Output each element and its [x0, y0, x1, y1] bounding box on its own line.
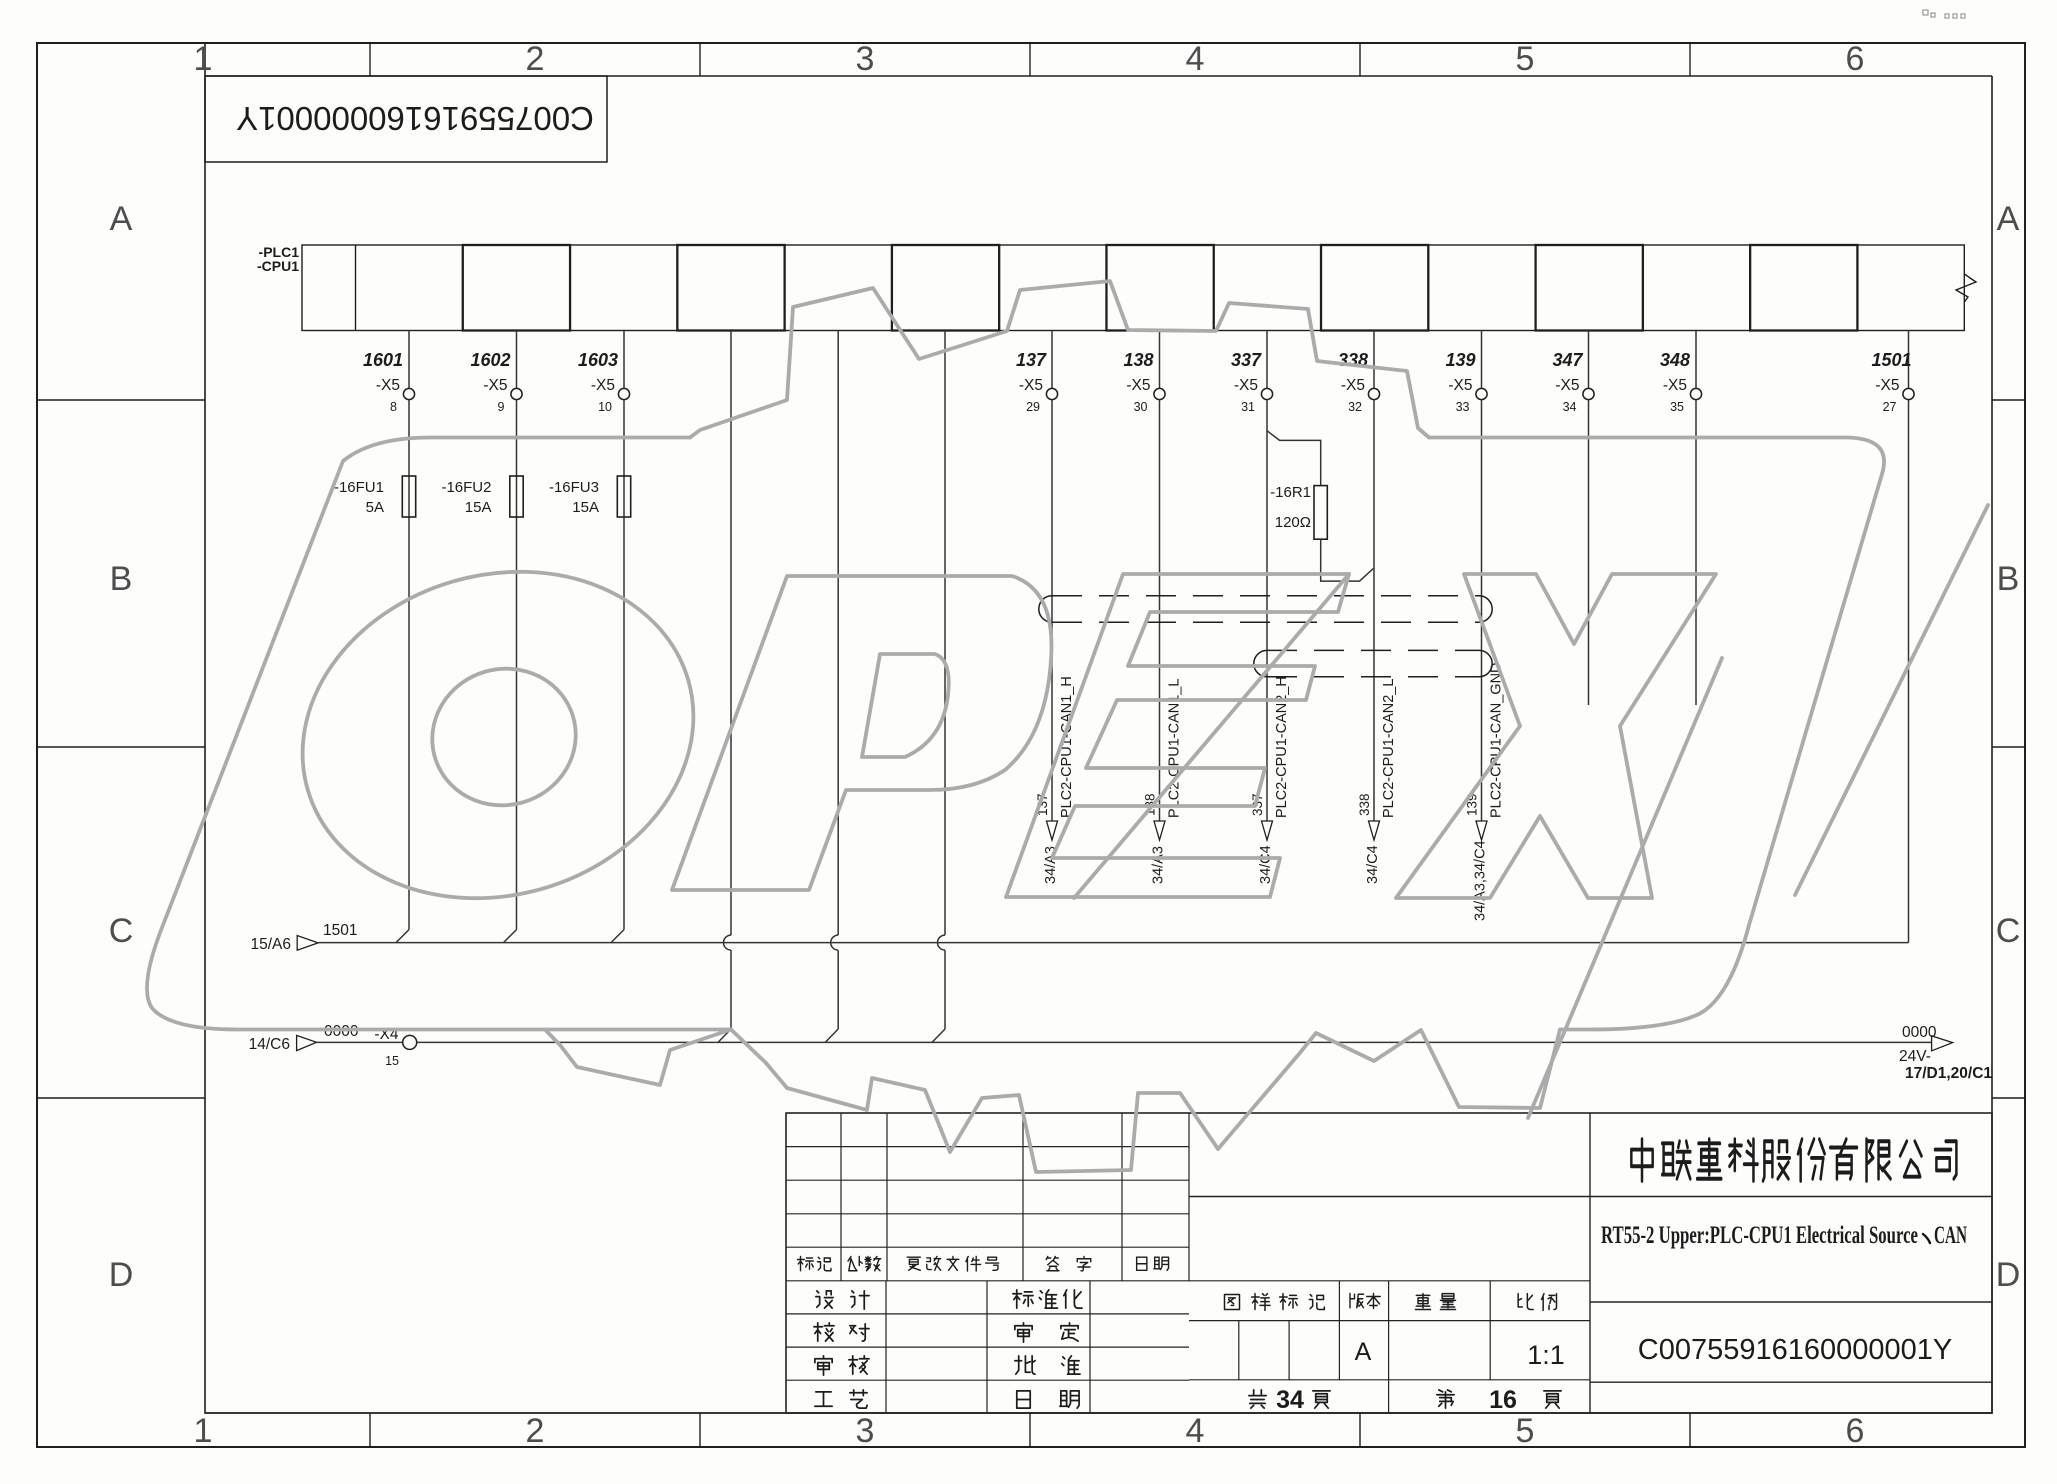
- svg-text:-16FU1: -16FU1: [334, 479, 384, 496]
- svg-text:27: 27: [1883, 400, 1897, 414]
- svg-text:2: 2: [526, 40, 545, 78]
- svg-text:RT55-2 Upper:PLC-CPU1 Electric: RT55-2 Upper:PLC-CPU1 Electrical Source: [1601, 1222, 1918, 1249]
- svg-text:15/A6: 15/A6: [250, 936, 291, 953]
- svg-text:3: 3: [856, 40, 875, 78]
- svg-text:1:1: 1:1: [1527, 1340, 1565, 1370]
- svg-text:4: 4: [1186, 1412, 1205, 1450]
- svg-text:15: 15: [385, 1054, 399, 1068]
- svg-text:PLC2-CPU1-CAN2_L: PLC2-CPU1-CAN2_L: [1381, 679, 1397, 818]
- svg-text:-X5: -X5: [1448, 377, 1472, 394]
- svg-text:1603: 1603: [578, 350, 618, 370]
- svg-text:30: 30: [1134, 400, 1148, 414]
- svg-text:-X5: -X5: [1875, 377, 1899, 394]
- svg-text:137: 137: [1016, 350, 1047, 370]
- svg-text:34/A3,34/C4: 34/A3,34/C4: [1473, 840, 1489, 921]
- svg-text:31: 31: [1241, 400, 1255, 414]
- svg-text:B: B: [110, 560, 133, 598]
- svg-text:5: 5: [1516, 1412, 1535, 1450]
- svg-text:17/D1,20/C1: 17/D1,20/C1: [1905, 1065, 1992, 1082]
- svg-text:D: D: [1996, 1256, 2021, 1294]
- svg-text:338: 338: [1357, 793, 1372, 816]
- svg-text:29: 29: [1026, 400, 1040, 414]
- svg-text:1: 1: [194, 1412, 213, 1450]
- svg-text:6: 6: [1846, 40, 1865, 78]
- svg-text:0000: 0000: [1902, 1024, 1937, 1041]
- svg-text:2: 2: [526, 1412, 545, 1450]
- svg-text:33: 33: [1456, 400, 1470, 414]
- svg-text:-CPU1: -CPU1: [257, 258, 299, 274]
- svg-text:34: 34: [1563, 400, 1577, 414]
- svg-text:0000: 0000: [324, 1023, 359, 1040]
- svg-text:-X5: -X5: [483, 377, 507, 394]
- svg-text:120Ω: 120Ω: [1275, 514, 1311, 531]
- svg-text:8: 8: [390, 400, 397, 414]
- svg-text:6: 6: [1846, 1412, 1865, 1450]
- svg-text:-X5: -X5: [1234, 377, 1258, 394]
- svg-text:-X5: -X5: [376, 377, 400, 394]
- svg-text:337: 337: [1231, 350, 1262, 370]
- svg-text:14/C6: 14/C6: [249, 1036, 290, 1053]
- svg-text:16: 16: [1489, 1386, 1517, 1414]
- svg-text:5A: 5A: [366, 499, 384, 516]
- svg-text:CAN: CAN: [1934, 1222, 1967, 1249]
- svg-text:32: 32: [1348, 400, 1362, 414]
- svg-text:1: 1: [194, 40, 213, 78]
- svg-text:4: 4: [1186, 40, 1205, 78]
- svg-text:C: C: [109, 912, 134, 950]
- svg-text:-X5: -X5: [1341, 377, 1365, 394]
- svg-text:15A: 15A: [572, 499, 599, 516]
- svg-text:C: C: [1996, 912, 2021, 950]
- svg-text:-X5: -X5: [1019, 377, 1043, 394]
- svg-text:A: A: [1355, 1338, 1372, 1366]
- svg-text:348: 348: [1660, 350, 1690, 370]
- svg-text:PLC2-CPU1-CAN_GND: PLC2-CPU1-CAN_GND: [1489, 662, 1505, 818]
- svg-text:3: 3: [856, 1412, 875, 1450]
- svg-text:-X5: -X5: [1126, 377, 1150, 394]
- svg-text:1501: 1501: [1871, 350, 1911, 370]
- svg-text:-X5: -X5: [1555, 377, 1579, 394]
- svg-text:C00755916160000001Y: C00755916160000001Y: [1638, 1334, 1952, 1366]
- svg-text:34: 34: [1276, 1386, 1304, 1414]
- svg-text:B: B: [1997, 560, 2020, 598]
- svg-text:-16FU3: -16FU3: [549, 479, 599, 496]
- svg-text:-16R1: -16R1: [1270, 484, 1311, 501]
- svg-text:-16FU2: -16FU2: [441, 479, 491, 496]
- svg-text:-X5: -X5: [591, 377, 615, 394]
- svg-text:9: 9: [498, 400, 505, 414]
- svg-text:A: A: [1997, 200, 2020, 238]
- svg-text:34/A3: 34/A3: [1151, 846, 1167, 884]
- svg-text:1602: 1602: [470, 350, 510, 370]
- svg-text:C00755916160000001Y: C00755916160000001Y: [236, 100, 594, 137]
- svg-text:10: 10: [598, 400, 612, 414]
- svg-text:D: D: [109, 1256, 134, 1294]
- svg-text:PLC2-CPU1-CAN2_H: PLC2-CPU1-CAN2_H: [1274, 676, 1290, 818]
- svg-text:24V-: 24V-: [1899, 1048, 1931, 1065]
- svg-text:138: 138: [1123, 350, 1153, 370]
- svg-text:1501: 1501: [323, 922, 357, 939]
- svg-text:1601: 1601: [363, 350, 403, 370]
- svg-text:A: A: [110, 200, 133, 238]
- svg-text:15A: 15A: [465, 499, 492, 516]
- svg-text:-X5: -X5: [1663, 377, 1687, 394]
- svg-text:347: 347: [1552, 350, 1583, 370]
- svg-text:34/C4: 34/C4: [1365, 845, 1381, 884]
- svg-text:139: 139: [1445, 350, 1475, 370]
- svg-text:34/C4: 34/C4: [1258, 845, 1274, 884]
- svg-text:5: 5: [1516, 40, 1535, 78]
- svg-text:35: 35: [1670, 400, 1684, 414]
